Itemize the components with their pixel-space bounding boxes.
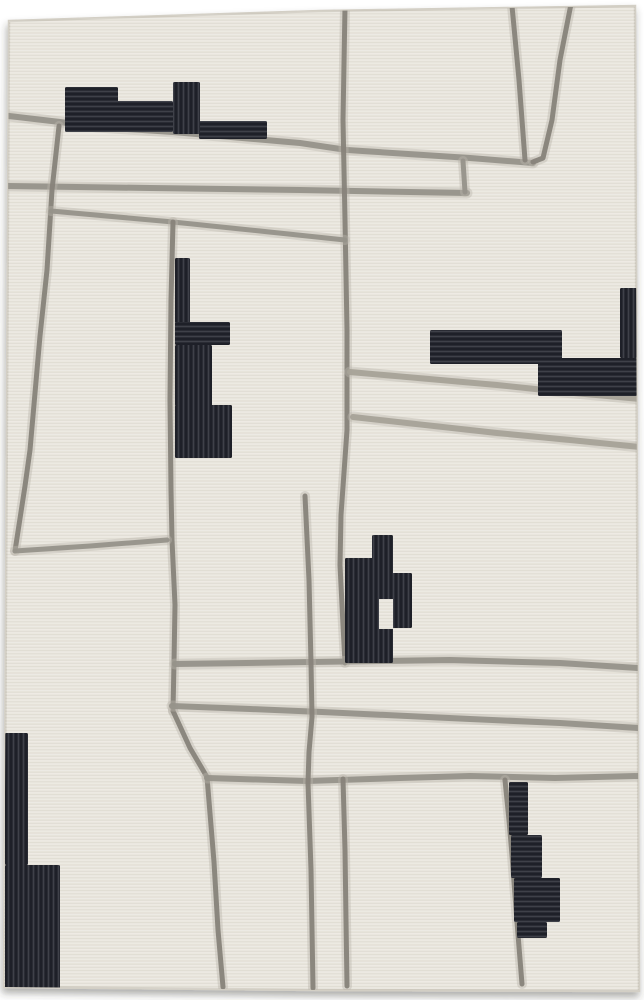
- right-edge-strip: [620, 288, 637, 358]
- top-left-column: [173, 82, 200, 134]
- left-e-arm: [175, 322, 230, 345]
- rug-product-image: [0, 0, 644, 1000]
- rug-pattern-layer: [0, 0, 644, 1000]
- product-photo-stage: [0, 0, 644, 1000]
- horizontal-connector: [463, 161, 465, 192]
- rug-photo: [0, 0, 644, 1000]
